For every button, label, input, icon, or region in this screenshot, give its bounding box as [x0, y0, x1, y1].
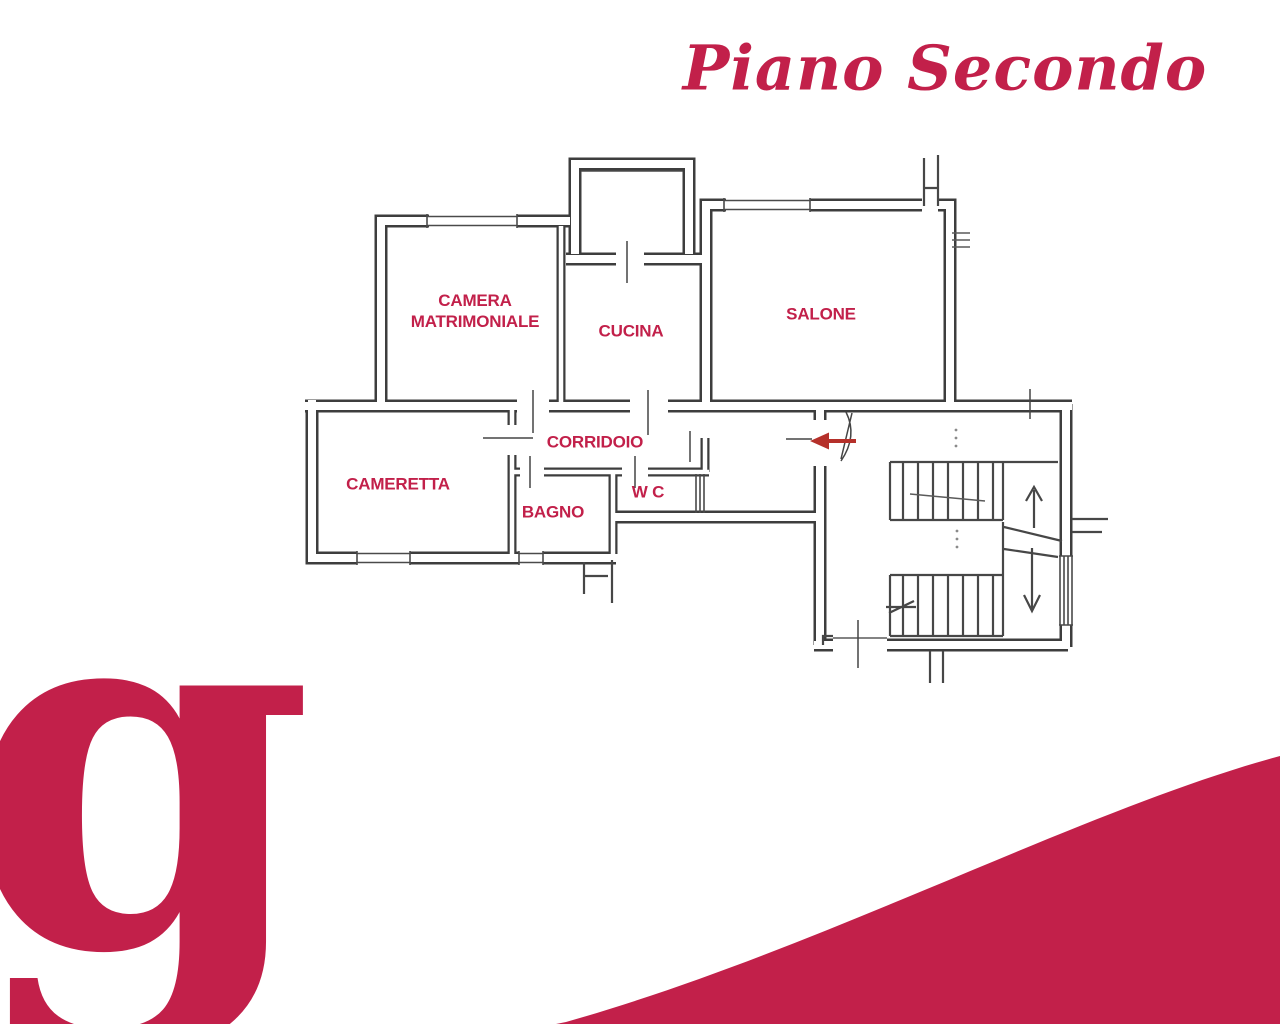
stairs-up-arrow: [1026, 487, 1042, 528]
room-label-bagno: BAGNO: [522, 502, 584, 523]
room-label-salone: SALONE: [786, 304, 856, 325]
page-title: Piano Secondo: [683, 32, 1207, 105]
stairs-down-arrow: [1024, 548, 1040, 611]
room-label-wc: W C: [632, 482, 664, 503]
stairs-lower-flight: [886, 575, 1003, 636]
staircase: [833, 429, 1062, 638]
page: { "page": { "background_color": "#ffffff…: [0, 0, 1280, 1024]
room-label-corridoio: CORRIDOIO: [547, 432, 643, 453]
entrance-door-swing: [841, 412, 852, 461]
room-label-camera-line1: CAMERA: [411, 290, 540, 311]
brand-g-logo: g: [0, 476, 315, 1024]
floor-plan-drawing: g: [0, 0, 1280, 1024]
room-label-camera-line2: MATRIMONIALE: [411, 311, 540, 332]
brand-corner-ellipse: [556, 756, 1280, 1024]
entrance-arrow: [810, 433, 856, 450]
room-label-cucina: CUCINA: [599, 321, 664, 342]
survey-dots: [955, 429, 959, 549]
room-label-camera-matrimoniale: CAMERA MATRIMONIALE: [411, 290, 540, 332]
floor-plan-page: g Piano Secondo CAMERA MATRIMONIALE CUCI…: [0, 0, 1280, 1024]
room-label-cameretta: CAMERETTA: [346, 474, 450, 495]
